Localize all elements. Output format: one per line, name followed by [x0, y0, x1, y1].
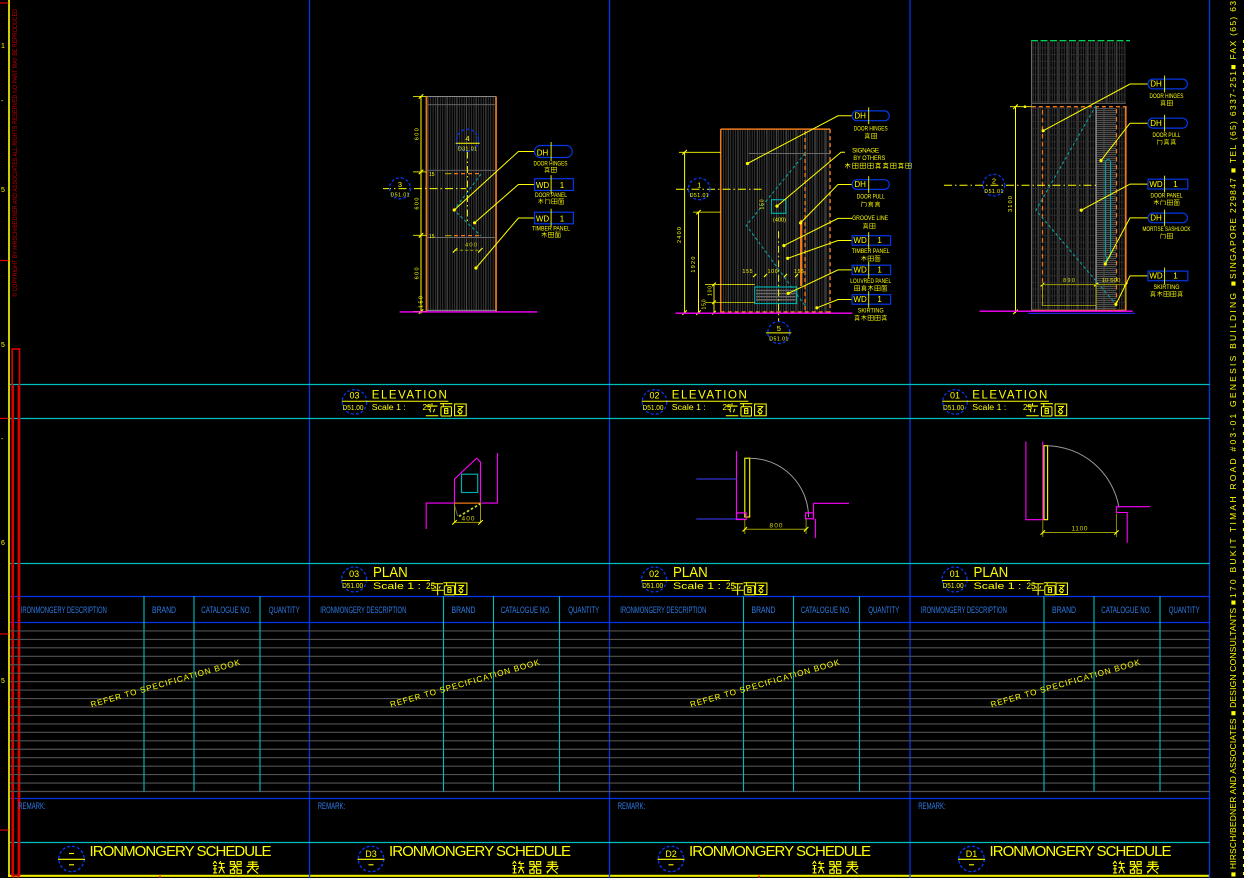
svg-text:BRAND: BRAND	[752, 605, 776, 616]
svg-text:SINGAPORE 229847 ■ TEL (65) 63: SINGAPORE 229847 ■ TEL (65) 6337-251■ FA…	[1228, 1, 1238, 279]
svg-text:SKIRTING: SKIRTING	[858, 308, 884, 315]
svg-text:REMARK:: REMARK:	[318, 800, 346, 811]
svg-text:PLAN: PLAN	[974, 564, 1009, 581]
svg-text:BRAND: BRAND	[1052, 605, 1076, 616]
svg-text:IRONMONGERY DESCRIPTION: IRONMONGERY DESCRIPTION	[320, 605, 406, 616]
svg-text:IRONMONGERY DESCRIPTION: IRONMONGERY DESCRIPTION	[21, 605, 107, 616]
svg-text:02: 02	[649, 569, 659, 579]
svg-text:D3: D3	[365, 849, 377, 859]
svg-text:15: 15	[429, 234, 435, 240]
svg-text:DH: DH	[854, 112, 866, 121]
svg-text:D1: D1	[966, 849, 978, 859]
svg-text:QUANTITY: QUANTITY	[568, 605, 599, 616]
svg-text:03: 03	[349, 391, 359, 401]
svg-text:ELEVATION: ELEVATION	[372, 389, 447, 401]
svg-text:2: 2	[992, 177, 996, 186]
svg-text:Scale 1 :: Scale 1 :	[673, 581, 721, 591]
svg-text:MORTISE SASHLOCK: MORTISE SASHLOCK	[1143, 226, 1192, 233]
svg-text:25: 25	[1023, 403, 1033, 412]
svg-text:1: 1	[877, 266, 882, 275]
svg-text:150: 150	[419, 296, 425, 308]
svg-text:155: 155	[794, 269, 804, 275]
svg-text:QUANTITY: QUANTITY	[269, 605, 300, 616]
svg-text:10 500: 10 500	[1102, 278, 1121, 284]
svg-text:ELEVATION: ELEVATION	[672, 389, 747, 401]
svg-text:150: 150	[702, 299, 708, 309]
svg-text:25: 25	[723, 403, 733, 412]
svg-text:1: 1	[560, 215, 565, 224]
svg-text:D51.01: D51.01	[391, 192, 410, 198]
svg-text:1: 1	[877, 236, 882, 245]
svg-text:D51.01: D51.01	[690, 193, 709, 199]
svg-text:BY OTHERS: BY OTHERS	[853, 155, 885, 162]
svg-text:2400: 2400	[677, 227, 683, 243]
svg-text:WD: WD	[536, 215, 550, 224]
svg-text:1: 1	[1, 43, 5, 50]
svg-text:CATALOGUE NO.: CATALOGUE NO.	[801, 605, 851, 616]
svg-text:WD: WD	[853, 236, 867, 245]
svg-text:PLAN: PLAN	[673, 564, 708, 581]
svg-text:REMARK:: REMARK:	[18, 800, 46, 811]
svg-text:DOOR PANEL: DOOR PANEL	[1151, 192, 1183, 199]
svg-text:150: 150	[760, 199, 766, 209]
svg-text:WD: WD	[853, 295, 867, 304]
svg-text:400: 400	[462, 515, 475, 522]
svg-text:25: 25	[423, 403, 433, 412]
svg-text:D51.00: D51.00	[343, 405, 364, 412]
svg-text:890: 890	[1063, 278, 1075, 284]
svg-text:Scale 1 :: Scale 1 :	[373, 581, 421, 591]
svg-text:D51.00: D51.00	[643, 405, 664, 412]
svg-text:DH: DH	[854, 180, 866, 189]
svg-text:CATALOGUE NO.: CATALOGUE NO.	[201, 605, 251, 616]
svg-text:GROOVE LINE: GROOVE LINE	[852, 215, 888, 222]
svg-text:IRONMONGERY SCHEDULE: IRONMONGERY SCHEDULE	[90, 843, 272, 860]
svg-text:© COPYRIGHT BY HIRSCH/BEDNER A: © COPYRIGHT BY HIRSCH/BEDNER AND ASSOCIA…	[11, 9, 19, 297]
svg-text:25: 25	[426, 581, 435, 591]
svg-text:Scale 1 :: Scale 1 :	[372, 403, 406, 412]
svg-text:D2: D2	[665, 849, 677, 859]
svg-text:D51.00: D51.00	[642, 583, 663, 590]
svg-text:6: 6	[1, 540, 5, 547]
svg-text:PLAN: PLAN	[373, 564, 408, 581]
svg-text:600: 600	[415, 198, 421, 210]
svg-text:D51.01: D51.01	[984, 189, 1003, 195]
svg-text:800: 800	[770, 522, 783, 529]
svg-text:5: 5	[1, 187, 5, 194]
svg-text:(400): (400)	[773, 217, 786, 223]
svg-text:01: 01	[950, 391, 960, 401]
svg-text:4: 4	[465, 134, 469, 143]
svg-text:WD: WD	[853, 266, 867, 275]
svg-text:REMARK:: REMARK:	[918, 800, 946, 811]
svg-text:CATALOGUE NO.: CATALOGUE NO.	[501, 605, 551, 616]
svg-text:01: 01	[950, 569, 960, 579]
svg-text:3: 3	[398, 180, 402, 189]
svg-text:D51.00: D51.00	[342, 583, 363, 590]
svg-text:■ HIRSCH/BEDNER AND ASSOCIATES: ■ HIRSCH/BEDNER AND ASSOCIATES ■ DESIGN …	[1228, 600, 1238, 877]
svg-text:3100: 3100	[1008, 196, 1014, 212]
svg-text:1100: 1100	[1072, 526, 1088, 533]
svg-text:D51.00: D51.00	[943, 405, 964, 412]
svg-text:DOOR PULL: DOOR PULL	[1153, 132, 1181, 139]
svg-text:DH: DH	[1150, 80, 1162, 89]
svg-text:IRONMONGERY DESCRIPTION: IRONMONGERY DESCRIPTION	[620, 605, 706, 616]
svg-text:1: 1	[877, 295, 882, 304]
svg-text:1: 1	[1173, 180, 1178, 189]
svg-text:DOOR PULL: DOOR PULL	[857, 194, 885, 201]
svg-text:02: 02	[649, 391, 659, 401]
svg-text:TIMBER PANEL: TIMBER PANEL	[532, 225, 570, 232]
svg-text:IRONMONGERY DESCRIPTION: IRONMONGERY DESCRIPTION	[921, 605, 1007, 616]
svg-text:QUANTITY: QUANTITY	[868, 605, 899, 616]
svg-text:1920: 1920	[691, 257, 697, 273]
svg-text:155: 155	[743, 269, 753, 275]
svg-text:100: 100	[708, 286, 714, 296]
svg-text:Scale 1 :: Scale 1 :	[972, 403, 1006, 412]
svg-text:D31.01: D31.01	[458, 146, 477, 152]
svg-text:DOOR HINGES: DOOR HINGES	[534, 160, 568, 167]
svg-text:Scale 1 :: Scale 1 :	[672, 403, 706, 412]
svg-text:WD: WD	[536, 181, 550, 190]
svg-text:Scale 1 :: Scale 1 :	[974, 581, 1022, 591]
svg-text:DOOR PANEL: DOOR PANEL	[535, 192, 567, 199]
svg-text:REMARK:: REMARK:	[618, 800, 646, 811]
svg-text:400: 400	[465, 242, 477, 248]
svg-text:1: 1	[697, 180, 701, 189]
svg-text:ELEVATION: ELEVATION	[972, 389, 1047, 401]
svg-text:IRONMONGERY SCHEDULE: IRONMONGERY SCHEDULE	[389, 843, 571, 860]
svg-text:WD: WD	[1149, 272, 1163, 281]
svg-text:D51.00: D51.00	[943, 583, 964, 590]
svg-text:1: 1	[1173, 272, 1178, 281]
svg-text:03: 03	[349, 569, 359, 579]
svg-text:DH: DH	[537, 148, 549, 157]
svg-text:SIGNAGE: SIGNAGE	[852, 147, 879, 154]
svg-text:D51.01: D51.01	[769, 337, 788, 343]
svg-text:25: 25	[1027, 581, 1036, 591]
svg-text:WD: WD	[1149, 180, 1163, 189]
svg-text:5: 5	[777, 324, 781, 333]
svg-text:5: 5	[1, 342, 5, 349]
svg-text:5: 5	[1, 678, 5, 685]
svg-text:600: 600	[415, 128, 421, 140]
svg-text:600: 600	[415, 267, 421, 279]
svg-text:LOUVRED PANEL: LOUVRED PANEL	[850, 278, 891, 285]
svg-text:QUANTITY: QUANTITY	[1169, 605, 1200, 616]
svg-text:SKIRTING: SKIRTING	[1154, 284, 1180, 291]
svg-text:DH: DH	[1150, 214, 1162, 223]
svg-text:100: 100	[768, 269, 778, 275]
svg-text:TIMBER PANEL: TIMBER PANEL	[852, 248, 890, 255]
svg-text:15: 15	[429, 172, 435, 178]
svg-text:BRAND: BRAND	[152, 605, 176, 616]
svg-text:BRAND: BRAND	[452, 605, 476, 616]
svg-text:DH: DH	[1150, 119, 1162, 128]
svg-text:1: 1	[560, 181, 565, 190]
svg-text:IRONMONGERY SCHEDULE: IRONMONGERY SCHEDULE	[990, 843, 1172, 860]
svg-text:DOOR HINGES: DOOR HINGES	[854, 125, 888, 132]
svg-text:DOOR HINGES: DOOR HINGES	[1150, 93, 1184, 100]
svg-text:IRONMONGERY SCHEDULE: IRONMONGERY SCHEDULE	[689, 843, 871, 860]
svg-text:25: 25	[726, 581, 735, 591]
svg-text:CATALOGUE NO.: CATALOGUE NO.	[1101, 605, 1151, 616]
